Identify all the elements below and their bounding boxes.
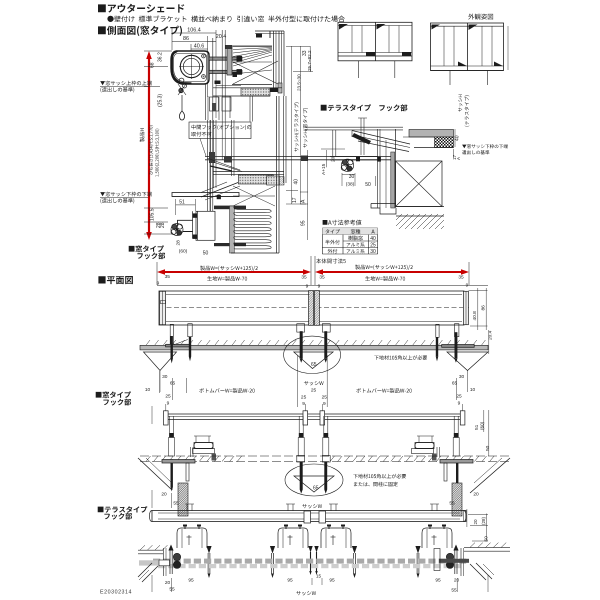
svg-text:10: 10 [145,387,151,393]
svg-text:15: 15 [316,574,322,579]
svg-text:25: 25 [322,395,328,401]
svg-text:28: 28 [160,222,166,228]
svg-text:95: 95 [329,578,335,584]
svg-text:9: 9 [302,401,305,407]
svg-text:(38): (38) [346,182,355,188]
svg-text:25: 25 [165,394,171,400]
svg-text:(28): (28) [481,516,486,525]
svg-text:86: 86 [481,305,487,311]
svg-text:65: 65 [313,486,319,492]
svg-text:10: 10 [470,387,476,393]
svg-text:36.2: 36.2 [158,52,164,62]
svg-text:30: 30 [162,374,168,380]
svg-text:9: 9 [323,401,326,407]
svg-text:30: 30 [459,374,465,380]
svg-text:105.5: 105.5 [150,208,156,221]
svg-text:95: 95 [301,220,307,226]
svg-text:55: 55 [451,588,457,594]
svg-text:20: 20 [331,156,337,162]
svg-text:35: 35 [165,274,171,280]
svg-text:20: 20 [454,578,460,584]
svg-text:E20302314: E20302314 [100,590,132,596]
svg-text:50: 50 [485,445,491,451]
svg-text:50: 50 [365,182,371,188]
svg-text:95: 95 [435,578,441,584]
svg-text:50: 50 [203,251,209,257]
svg-text:86: 86 [183,36,189,42]
svg-text:9: 9 [318,284,321,290]
svg-text:25: 25 [301,395,307,401]
svg-text:25: 25 [456,394,462,400]
svg-text:25.7~82.2: 25.7~82.2 [307,50,312,71]
svg-text:9: 9 [458,401,461,407]
svg-text:20.4: 20.4 [488,330,494,340]
svg-text:65: 65 [311,362,317,368]
svg-text:20: 20 [473,492,479,498]
svg-text:106.4: 106.4 [187,28,201,34]
svg-text:40: 40 [455,135,461,141]
svg-text:55: 55 [173,501,179,507]
svg-text:A+15: A+15 [321,163,327,175]
svg-text:95: 95 [188,578,194,584]
svg-text:(25.3): (25.3) [158,94,164,107]
svg-text:9: 9 [306,284,309,290]
svg-text:40: 40 [370,236,376,242]
svg-text:95: 95 [287,578,293,584]
svg-text:25: 25 [370,243,376,249]
svg-text:23.5~30: 23.5~30 [297,74,302,91]
svg-text:40.8: 40.8 [472,311,478,321]
svg-text:68: 68 [150,62,156,68]
svg-text:20: 20 [165,580,171,586]
svg-text:55: 55 [449,501,455,507]
svg-text:35: 35 [458,275,464,281]
svg-text:20.4: 20.4 [216,34,227,40]
svg-text:40.6: 40.6 [194,44,205,50]
svg-text:(60): (60) [480,421,485,430]
svg-text:35: 35 [301,275,307,281]
svg-text:35: 35 [319,275,325,281]
svg-text:30: 30 [349,174,355,180]
svg-text:28: 28 [176,240,182,246]
svg-text:17: 17 [292,197,298,203]
svg-text:(60): (60) [179,249,188,255]
svg-text:40: 40 [294,179,300,185]
svg-text:30: 30 [370,249,376,255]
svg-text:50: 50 [484,536,490,542]
svg-text:9: 9 [167,401,170,407]
svg-text:55: 55 [169,587,175,593]
svg-text:25: 25 [311,388,317,394]
svg-text:20: 20 [161,492,167,498]
svg-text:20: 20 [473,519,478,525]
